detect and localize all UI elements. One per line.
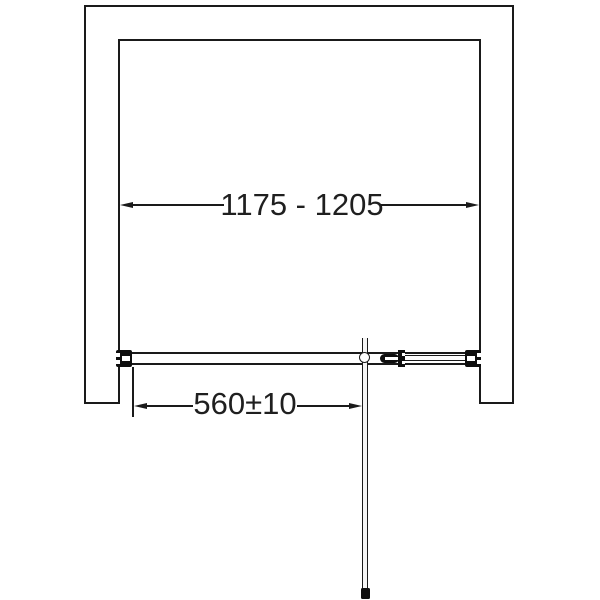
track-rail-tube <box>404 355 467 361</box>
wall-cap-left <box>84 402 120 404</box>
width-dim-line-left <box>131 204 224 206</box>
wall-outer-right <box>512 5 514 404</box>
width-dim-arrow-right-icon <box>466 202 479 208</box>
width-dim-label: 1175 - 1205 <box>220 189 383 220</box>
bracket-notch <box>116 353 120 357</box>
diagram-canvas: 1175 - 1205 560±10 <box>0 0 600 600</box>
bracket-slot <box>122 356 130 361</box>
bracket-notch <box>116 360 120 364</box>
wall-inner-top <box>118 39 481 41</box>
wall-cap-right <box>479 402 514 404</box>
door-floor-guide <box>361 588 370 599</box>
wall-outer-top <box>84 5 514 7</box>
door-panel-edge <box>362 338 368 598</box>
door-knob-circle <box>359 352 370 363</box>
roller-clamp <box>380 354 399 364</box>
track-top-line <box>131 352 467 354</box>
bracket-notch <box>477 360 481 364</box>
offset-dim-arrow-right-icon <box>349 403 362 409</box>
wall-bracket-left <box>116 350 132 367</box>
bracket-notch <box>402 353 405 356</box>
offset-dim-line-right <box>297 405 349 407</box>
wall-outer-left <box>84 5 86 404</box>
bracket-notch <box>402 361 405 364</box>
offset-dim-extension-line <box>132 367 134 417</box>
wall-bracket-right <box>465 350 481 367</box>
bracket-slot <box>467 356 475 361</box>
roller-slot <box>385 357 399 361</box>
roller-bracket <box>398 350 405 368</box>
width-dim-line-right <box>381 204 468 206</box>
track-bottom-line <box>131 363 467 365</box>
offset-dim-line-left <box>145 405 193 407</box>
offset-dim-label: 560±10 <box>193 388 296 419</box>
bracket-notch <box>477 353 481 357</box>
